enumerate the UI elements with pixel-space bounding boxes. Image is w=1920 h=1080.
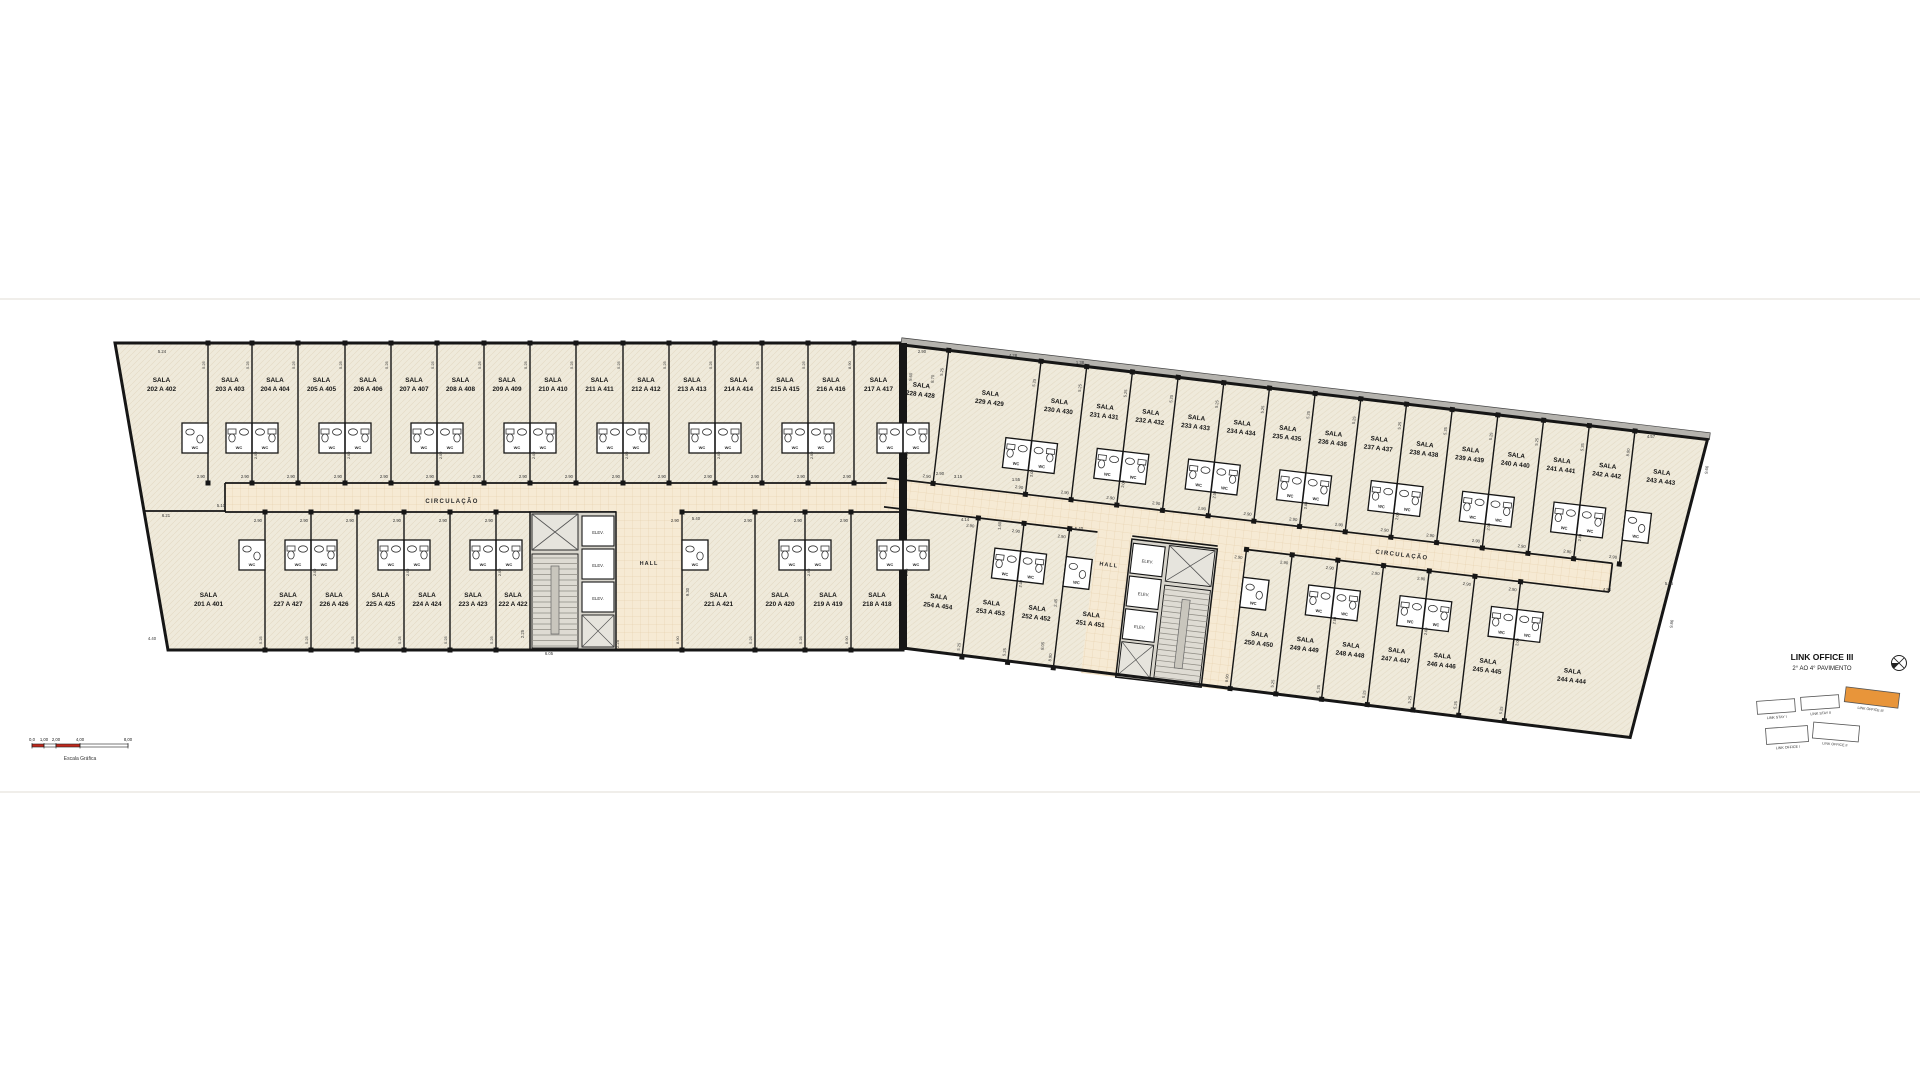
dim-label: 8.90 [844, 635, 849, 644]
room-label-prefix: SALA [405, 377, 423, 384]
dimension-label: 6.21 [162, 513, 171, 518]
wc-label: WC [692, 562, 699, 567]
dim-label: 5.25 [755, 360, 760, 369]
dim-label: 5.25 [939, 367, 945, 376]
toilet-icon [880, 551, 886, 559]
toilet-icon [327, 546, 335, 551]
sink-icon [349, 429, 358, 435]
room-label-number: 202 A 402 [147, 386, 176, 393]
dim-label: 2.00 [1395, 512, 1400, 520]
dimension-label: 5.24 [158, 349, 167, 354]
hall-floor [616, 512, 682, 650]
dim-label: 2.00 [1212, 491, 1217, 499]
column [1617, 561, 1623, 567]
toilet-icon [920, 551, 926, 559]
wc-label: WC [421, 445, 428, 450]
wc-label: WC [789, 562, 796, 567]
scale-tick: 8,00 [124, 737, 133, 742]
column [343, 481, 348, 486]
dim-label: 2.00 [313, 569, 317, 576]
dim-label: 5.25 [662, 360, 667, 369]
column [206, 481, 211, 486]
scale-tick: 0,0 [29, 737, 36, 742]
toilet-icon [546, 429, 554, 434]
toilet-icon [879, 429, 887, 434]
wc-label: WC [321, 562, 328, 567]
dim-label: 5.25 [1351, 415, 1357, 424]
dimension-label: 9.86 [1669, 619, 1675, 628]
dim-label: 2.90 [485, 518, 494, 523]
room-label-number: 224 A 424 [412, 601, 441, 608]
dim-label: 2.00 [807, 569, 811, 576]
dim-label: 5.25 [489, 635, 494, 644]
stair-rail [551, 566, 559, 634]
toilet-icon [919, 429, 927, 434]
dim-label: 2.90 [1234, 554, 1243, 560]
wc-label: WC [1469, 514, 1476, 520]
column [1388, 534, 1394, 540]
keyplan-label: LINK OFFICE I [1776, 745, 1800, 751]
column [1518, 579, 1524, 585]
toilet-icon [1256, 591, 1263, 600]
dimension-label: 2.90 [936, 471, 945, 476]
wc-label: WC [1495, 517, 1502, 523]
room-label-prefix: SALA [771, 592, 789, 599]
wc-module-pair: WCWC2.00 [877, 423, 929, 459]
wc-module-pair: WCWC2.00 [597, 423, 649, 459]
dim-label: 5.25 [1077, 383, 1083, 392]
column [1480, 545, 1486, 551]
dim-label: 5.25 [443, 635, 448, 644]
floor-plan: SALA202 A 4022.905.25SALA203 A 4032.905.… [0, 0, 1920, 1080]
dim-label: 2.90 [1472, 538, 1481, 544]
wc-label: WC [506, 562, 513, 567]
room-label-number: 221 A 421 [704, 601, 733, 608]
sink-icon [703, 429, 712, 435]
wc-label: WC [1073, 579, 1080, 585]
dim-label: 5.25 [1259, 405, 1265, 414]
column [1067, 526, 1073, 532]
toilet-icon [507, 434, 513, 442]
wc-module-single: WC [1063, 557, 1092, 590]
toilet-icon [1503, 507, 1510, 516]
dim-label: 5.25 [1001, 647, 1007, 656]
column [1023, 492, 1029, 498]
toilet-icon [599, 429, 607, 434]
wc-label: WC [1027, 574, 1034, 580]
dim-label: 2.90 [1015, 484, 1024, 490]
column [1244, 547, 1250, 553]
column [355, 510, 360, 515]
sink-icon [500, 546, 509, 552]
dim-label: 2.90 [519, 474, 528, 479]
wc-label: WC [913, 562, 920, 567]
toilet-icon [1046, 454, 1053, 463]
drawing-sheet: SALA202 A 4022.905.25SALA203 A 4032.905.… [0, 0, 1920, 1080]
elevator-label: ELEV. [592, 596, 604, 601]
column [1525, 551, 1531, 557]
floor-plan-generated: SALA202 A 4022.905.25SALA203 A 4032.905.… [0, 299, 1920, 792]
toilet-icon [1320, 481, 1329, 487]
column [448, 510, 453, 515]
room-label-prefix: SALA [452, 377, 470, 384]
sink-icon [299, 546, 308, 552]
wc-label: WC [1130, 474, 1137, 480]
keyplan-label: LINK STAY II [1810, 711, 1831, 716]
sink-icon [240, 429, 249, 435]
keyplan-shape [1757, 699, 1796, 715]
toilet-icon [1309, 596, 1316, 605]
toilet-icon [1440, 612, 1447, 621]
room-label-number: 219 A 419 [813, 601, 842, 608]
toilet-icon [1401, 602, 1410, 608]
dimension-label: 4.28 [1009, 353, 1018, 358]
wc-label: WC [1012, 461, 1019, 467]
toilet-icon [1372, 492, 1379, 501]
dim-label: 2.90 [922, 473, 931, 479]
dim-label: 5.25 [748, 635, 753, 644]
column [1472, 574, 1478, 580]
dim-label: 5.25 [258, 635, 263, 644]
dimension-label: 1.38 [1076, 360, 1085, 365]
column [667, 481, 672, 486]
dimension-label: 5.10 [217, 503, 226, 508]
wc-label: WC [480, 562, 487, 567]
room-label-prefix: SALA [221, 377, 239, 384]
wc-label: WC [1586, 528, 1593, 534]
dim-label: 5.25 [1498, 705, 1504, 714]
dim-label: 2.00 [1515, 638, 1520, 646]
column [435, 481, 440, 486]
dimension-label: 4.94 [1603, 587, 1612, 592]
dim-label: 5.25 [1315, 684, 1321, 693]
toilet-icon [1463, 503, 1470, 512]
dim-label: 2.90 [966, 523, 975, 529]
wc-label: WC [1250, 600, 1257, 606]
dim-label: 5.25 [430, 360, 435, 369]
toilet-icon [421, 551, 427, 559]
wc-label: WC [1286, 493, 1293, 499]
toilet-icon [1006, 449, 1013, 458]
toilet-icon [1555, 508, 1564, 514]
scale-tick: 4,00 [76, 737, 85, 742]
dim-label: 2.90 [1463, 581, 1472, 587]
room-label-prefix: SALA [498, 377, 516, 384]
wc-label: WC [607, 445, 614, 450]
dim-label: 2.90 [744, 518, 753, 523]
dim-label: 8.90 [847, 360, 852, 369]
sink-icon [1069, 563, 1078, 570]
room-label-prefix: SALA [730, 377, 748, 384]
dim-label: 2.90 [843, 474, 852, 479]
wc-label: WC [1038, 464, 1045, 470]
wc-label: WC [192, 445, 199, 450]
wc-label: WC [262, 445, 269, 450]
wc-label: WC [1341, 611, 1348, 617]
hall-label: HALL [640, 561, 659, 567]
column [528, 481, 533, 486]
dim-label: 2.90 [1380, 527, 1389, 533]
room-label-number: 207 A 407 [399, 386, 428, 393]
column [1068, 497, 1074, 503]
column [849, 510, 854, 515]
sink-icon [186, 429, 194, 435]
wc-module-pair: WCWC2.00 [226, 423, 278, 459]
sink-icon [408, 546, 417, 552]
column [1434, 540, 1440, 546]
room-label-prefix: SALA [313, 377, 331, 384]
dimension-label: 4.40 [148, 636, 157, 641]
toilet-icon [1189, 470, 1196, 479]
wc-label: WC [447, 445, 454, 450]
sink-icon [425, 429, 434, 435]
dimension-label: 3.15 [954, 474, 963, 479]
dim-label: 2.90 [1517, 543, 1526, 549]
dimension-label: 4.57 [1647, 434, 1656, 439]
toilet-icon [414, 434, 420, 442]
toilet-icon [1492, 613, 1501, 619]
dim-label: 5.25 [1031, 378, 1037, 387]
wc-module-pair: WCWC2.00 [470, 540, 522, 576]
room-label-number: 215 A 415 [770, 386, 799, 393]
sink-icon [484, 546, 493, 552]
north-arrow-icon [1891, 656, 1906, 671]
keyplan-shape-highlight [1844, 687, 1899, 708]
dim-label: 2.90 [426, 474, 435, 479]
toilet-icon [254, 552, 260, 560]
wc-module-pair: WCWC2.00 [411, 423, 463, 459]
dim-label: 5.25 [1270, 679, 1276, 688]
wc-label: WC [414, 562, 421, 567]
dim-label: 5.25 [397, 635, 402, 644]
toilet-icon [1532, 617, 1541, 623]
room-label-number: 220 A 420 [765, 601, 794, 608]
keyplan-item: LINK STAY I [1757, 699, 1796, 721]
sink-icon [243, 546, 251, 552]
dim-label: 2.90 [840, 518, 849, 523]
wc-label: WC [1195, 482, 1202, 488]
room-label-prefix: SALA [504, 592, 522, 599]
sink-icon [686, 546, 694, 552]
stair-elevator-core: ELEV.ELEV.ELEV. [530, 512, 616, 650]
keyplan-shape [1765, 726, 1808, 745]
toilet-icon [228, 429, 236, 434]
dim-label: 2.00 [406, 569, 410, 576]
room-label-prefix: SALA [637, 377, 655, 384]
sink-icon [891, 546, 900, 552]
dim-label: 5.25 [1305, 410, 1311, 419]
dim-label: 2.90 [254, 518, 263, 523]
toilet-icon [229, 434, 235, 442]
room-label-number: 206 A 406 [353, 386, 382, 393]
wc-label: WC [1315, 608, 1322, 614]
column [1114, 502, 1120, 508]
column [1160, 508, 1166, 514]
wc-label: WC [1524, 632, 1531, 638]
keyplan-item: LINK STAY II [1801, 695, 1840, 717]
wc-label: WC [540, 445, 547, 450]
toilet-icon [1098, 455, 1107, 461]
toilet-icon [287, 546, 295, 551]
toilet-icon [784, 429, 792, 434]
room-label-prefix: SALA [710, 592, 728, 599]
toilet-icon [1412, 491, 1421, 497]
room-label-prefix: SALA [868, 592, 886, 599]
toilet-icon [1441, 607, 1450, 613]
dim-label: 2.90 [1106, 495, 1115, 501]
toilet-icon [506, 429, 514, 434]
scale-tick: 2,00 [52, 737, 61, 742]
toilet-icon [1079, 570, 1086, 579]
wc-label: WC [355, 445, 362, 450]
toilet-icon [288, 551, 294, 559]
toilet-icon [1492, 618, 1499, 627]
toilet-icon [361, 429, 369, 434]
wc-module-pair: WCWC2.00 [504, 423, 556, 459]
room-label-number: 226 A 426 [319, 601, 348, 608]
titleblock-subtitle: 2° AO 4° PAVIMENTO [1792, 666, 1851, 672]
titleblock-title: LINK OFFICE III [1791, 652, 1854, 662]
dimension-label: 2.45 [1053, 598, 1059, 607]
sink-icon [333, 429, 342, 435]
room-label-prefix: SALA [776, 377, 794, 384]
room-label-number: 222 A 422 [498, 601, 527, 608]
wc-label: WC [295, 562, 302, 567]
scale-segment [32, 744, 44, 747]
wc-module-pair: WCWC2.00 [877, 540, 929, 576]
toilet-icon [1229, 475, 1236, 484]
keyplan-shape [1801, 695, 1840, 711]
wc-label: WC [1104, 471, 1111, 477]
room-label-number: 203 A 403 [215, 386, 244, 393]
dim-label: 2.90 [1426, 532, 1435, 538]
dim-label: 2.00 [1578, 534, 1583, 542]
sink-icon [1246, 584, 1255, 591]
dim-label: 2.00 [498, 569, 502, 576]
dim-label: 5.25 [384, 360, 389, 369]
scale-segment [56, 744, 80, 747]
room-label-number: 205 A 405 [307, 386, 336, 393]
dim-label: 2.90 [287, 474, 296, 479]
toilet-icon [472, 546, 480, 551]
wc-module-single: WC [182, 423, 208, 453]
dim-label: 2.90 [794, 518, 803, 523]
toilet-icon [1638, 524, 1645, 533]
dim-label: 5.25 [1579, 442, 1585, 451]
dim-label: 2.90 [1417, 576, 1426, 582]
dim-label: 8.90 [1047, 652, 1053, 661]
toilet-icon [1046, 448, 1055, 454]
wc-module-pair: WCWC2.00 [378, 540, 430, 576]
dim-label: 2.00 [905, 569, 909, 576]
toilet-icon [420, 546, 428, 551]
toilet-icon [1372, 487, 1381, 493]
dim-label: 2.00 [1030, 469, 1035, 477]
column [621, 481, 626, 486]
wc-label: WC [633, 445, 640, 450]
dim-label: 2.90 [473, 474, 482, 479]
dimension-label: 2.25 [520, 629, 525, 638]
toilet-icon [639, 429, 647, 434]
room-label-prefix: SALA [822, 377, 840, 384]
wc-module-pair: WCWC2.00 [689, 423, 741, 459]
room-label-prefix: SALA [153, 377, 171, 384]
dim-label: 5.25 [1122, 388, 1128, 397]
column [1289, 552, 1295, 558]
room-label-prefix: SALA [359, 377, 377, 384]
dim-label: 2.90 [300, 518, 309, 523]
toilet-icon [781, 546, 789, 551]
toilet-icon [880, 434, 886, 442]
column [1205, 513, 1211, 519]
elevator-label: ELEV. [592, 563, 604, 568]
sink-icon [627, 429, 636, 435]
dimension-label: 5.40 [1075, 526, 1084, 531]
toilet-icon [1007, 444, 1016, 450]
toilet-icon [362, 434, 368, 442]
sink-icon [719, 429, 728, 435]
column [806, 481, 811, 486]
toilet-icon [732, 434, 738, 442]
column [1426, 568, 1432, 574]
dim-label: 5.25 [1214, 399, 1220, 408]
dimension-label: 9.30 [685, 587, 690, 596]
wc-label: WC [1407, 619, 1414, 625]
toilet-icon [821, 546, 829, 551]
wc-label: WC [1221, 485, 1228, 491]
room-label-number: 208 A 408 [446, 386, 475, 393]
toilet-icon [547, 434, 553, 442]
dim-label: 2.90 [1152, 500, 1161, 506]
sink-icon [441, 429, 450, 435]
toilet-icon [1594, 518, 1601, 527]
dim-label: 5.25 [304, 635, 309, 644]
dim-label: 5.25 [350, 635, 355, 644]
wc-label: WC [699, 445, 706, 450]
toilet-icon [1138, 464, 1145, 473]
keyplan-item: LINK OFFICE II [1812, 722, 1860, 748]
wc-label: WC [236, 445, 243, 450]
room-label-prefix: SALA [266, 377, 284, 384]
sink-icon [256, 429, 265, 435]
dim-label: 2.90 [1508, 586, 1517, 592]
dim-label: 5.25 [1168, 394, 1174, 403]
toilet-icon [691, 429, 699, 434]
dim-label: 2.90 [439, 518, 448, 523]
column [1251, 518, 1257, 524]
sink-icon [518, 429, 527, 435]
dimension-label: 2.25 [615, 639, 620, 648]
toilet-icon [453, 429, 461, 434]
sink-icon [315, 546, 324, 552]
room-label-prefix: SALA [325, 592, 343, 599]
toilet-icon [919, 546, 927, 551]
toilet-icon [473, 551, 479, 559]
scalebar-caption: Escala Gráfica [64, 756, 97, 762]
room-label-number: 216 A 416 [816, 386, 845, 393]
room-label-number: 225 A 425 [366, 601, 395, 608]
wc-module-single: WC [682, 540, 708, 570]
dim-label: 2.00 [905, 452, 909, 459]
room-label-number: 204 A 404 [260, 386, 289, 393]
title-block: LINK OFFICE III 2° AO 4° PAVIMENTO LINK … [1757, 652, 1907, 751]
column [494, 510, 499, 515]
dim-label: 5.25 [798, 635, 803, 644]
dim-label: 2.00 [1332, 617, 1337, 625]
room-label-prefix: SALA [372, 592, 390, 599]
toilet-icon [328, 551, 334, 559]
dim-label: 5.25 [801, 360, 806, 369]
